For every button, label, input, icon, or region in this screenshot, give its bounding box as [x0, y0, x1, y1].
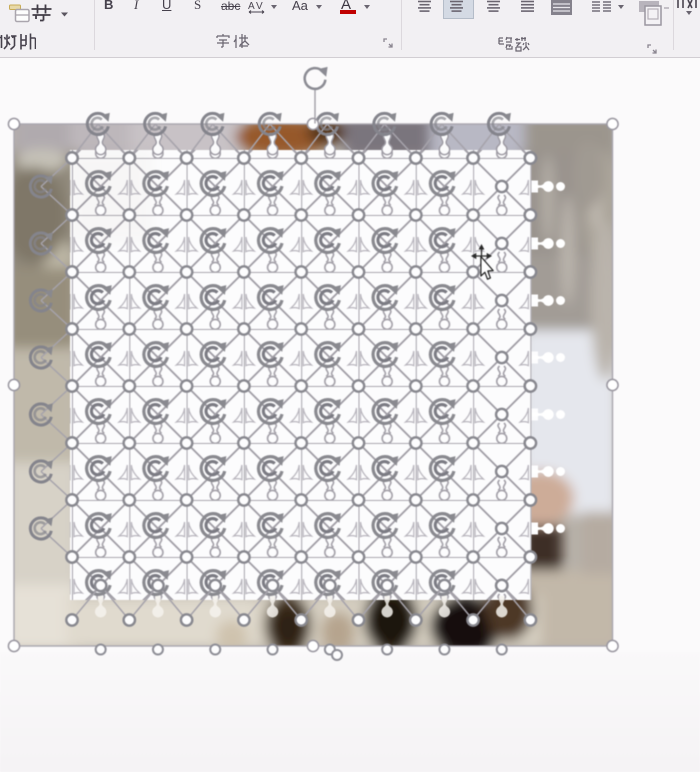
svg-text:A: A: [248, 1, 255, 12]
svg-text:V: V: [256, 1, 263, 12]
